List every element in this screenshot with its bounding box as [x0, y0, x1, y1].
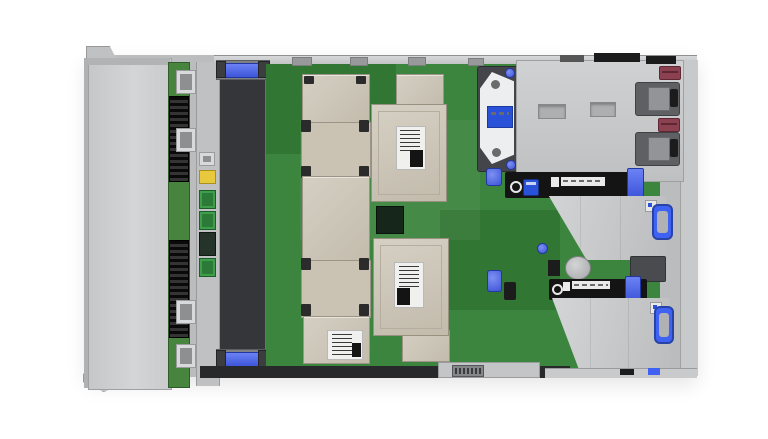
latch-end-cap — [216, 61, 226, 78]
dark-edge-clip — [620, 369, 634, 375]
chipset — [376, 206, 404, 234]
riser1-blue-latch — [627, 168, 644, 198]
label-barcode — [397, 288, 410, 305]
socket-clip — [301, 304, 311, 316]
power-connector-dark — [199, 232, 216, 256]
socket-clip — [356, 76, 366, 84]
riser2-blue-handle — [654, 306, 674, 344]
label-barcode — [352, 343, 361, 357]
backplane-sas-connector — [176, 344, 196, 368]
heatsink-top-block — [396, 74, 444, 108]
heatsink-spec-label — [394, 262, 424, 308]
blue-thumbscrew — [506, 160, 516, 170]
drive-cage-rim — [88, 58, 170, 65]
socket-clip — [301, 258, 311, 270]
label-number-box — [551, 177, 559, 187]
latch-end-cap — [216, 350, 226, 367]
riser-id-icon — [523, 179, 539, 196]
power-connector-green — [199, 190, 216, 209]
dark-clip — [504, 282, 516, 300]
top-edge-tab — [408, 57, 426, 66]
riser1-text-label — [561, 177, 605, 186]
blue-standoff — [537, 243, 548, 254]
board-connector — [548, 260, 560, 276]
label-number-box — [563, 282, 570, 291]
top-edge-tab — [468, 58, 484, 66]
cmos-coin-battery — [565, 256, 591, 280]
socket-clip — [359, 120, 369, 132]
rear-top-block — [646, 56, 676, 64]
power-connector-white — [199, 152, 215, 166]
label-barcode — [410, 150, 423, 167]
heatsink-spec-label — [396, 126, 426, 170]
power-connector-green — [199, 211, 216, 230]
circle-icon — [552, 284, 563, 295]
bracket-hole — [492, 148, 501, 157]
label-microtext — [399, 266, 419, 288]
psu-handle-2 — [635, 132, 680, 166]
cover-cutout — [538, 104, 566, 119]
label-microtext — [332, 334, 352, 356]
blue-thumbscrew — [505, 68, 515, 78]
energy-pack-label — [487, 106, 513, 128]
riser1-blue-handle — [652, 204, 673, 240]
socket-clip — [304, 76, 314, 84]
edge-connector — [452, 365, 484, 377]
cpu-heatsink-block — [302, 176, 370, 262]
socket-clip — [359, 304, 369, 316]
fan-cage-blue-latch-bottom — [222, 352, 260, 367]
socket-clip — [359, 258, 369, 270]
warning-label — [199, 170, 216, 184]
blue-wing-screw — [486, 168, 502, 186]
heatsink-spec-label — [327, 330, 363, 360]
cover-cutout — [590, 102, 616, 117]
bracket-hole — [491, 80, 500, 89]
riser2-text-label — [572, 281, 610, 289]
label-microtext — [400, 130, 420, 152]
fan-cage-blue-latch-top — [222, 63, 260, 78]
blue-retention-clip — [487, 270, 502, 292]
backplane-sas-connector — [176, 70, 196, 94]
rear-top-block — [560, 55, 584, 62]
top-edge-tab — [292, 57, 312, 66]
psu-pull-tab-1 — [659, 66, 681, 80]
top-edge-tab — [350, 57, 368, 66]
blue-edge-clip — [648, 368, 660, 375]
backplane-sas-connector — [176, 300, 196, 324]
psu-pull-tab-2 — [658, 118, 680, 132]
socket-clip — [301, 120, 311, 132]
power-connector-green — [199, 258, 216, 277]
fan-cage — [220, 78, 266, 356]
circle-icon — [510, 181, 522, 193]
backplane-sas-connector — [176, 128, 196, 152]
server-top-view-photo — [0, 0, 768, 439]
psu-handle-1 — [635, 82, 680, 116]
drive-cage-cover — [88, 58, 172, 390]
rear-top-block — [594, 53, 640, 62]
